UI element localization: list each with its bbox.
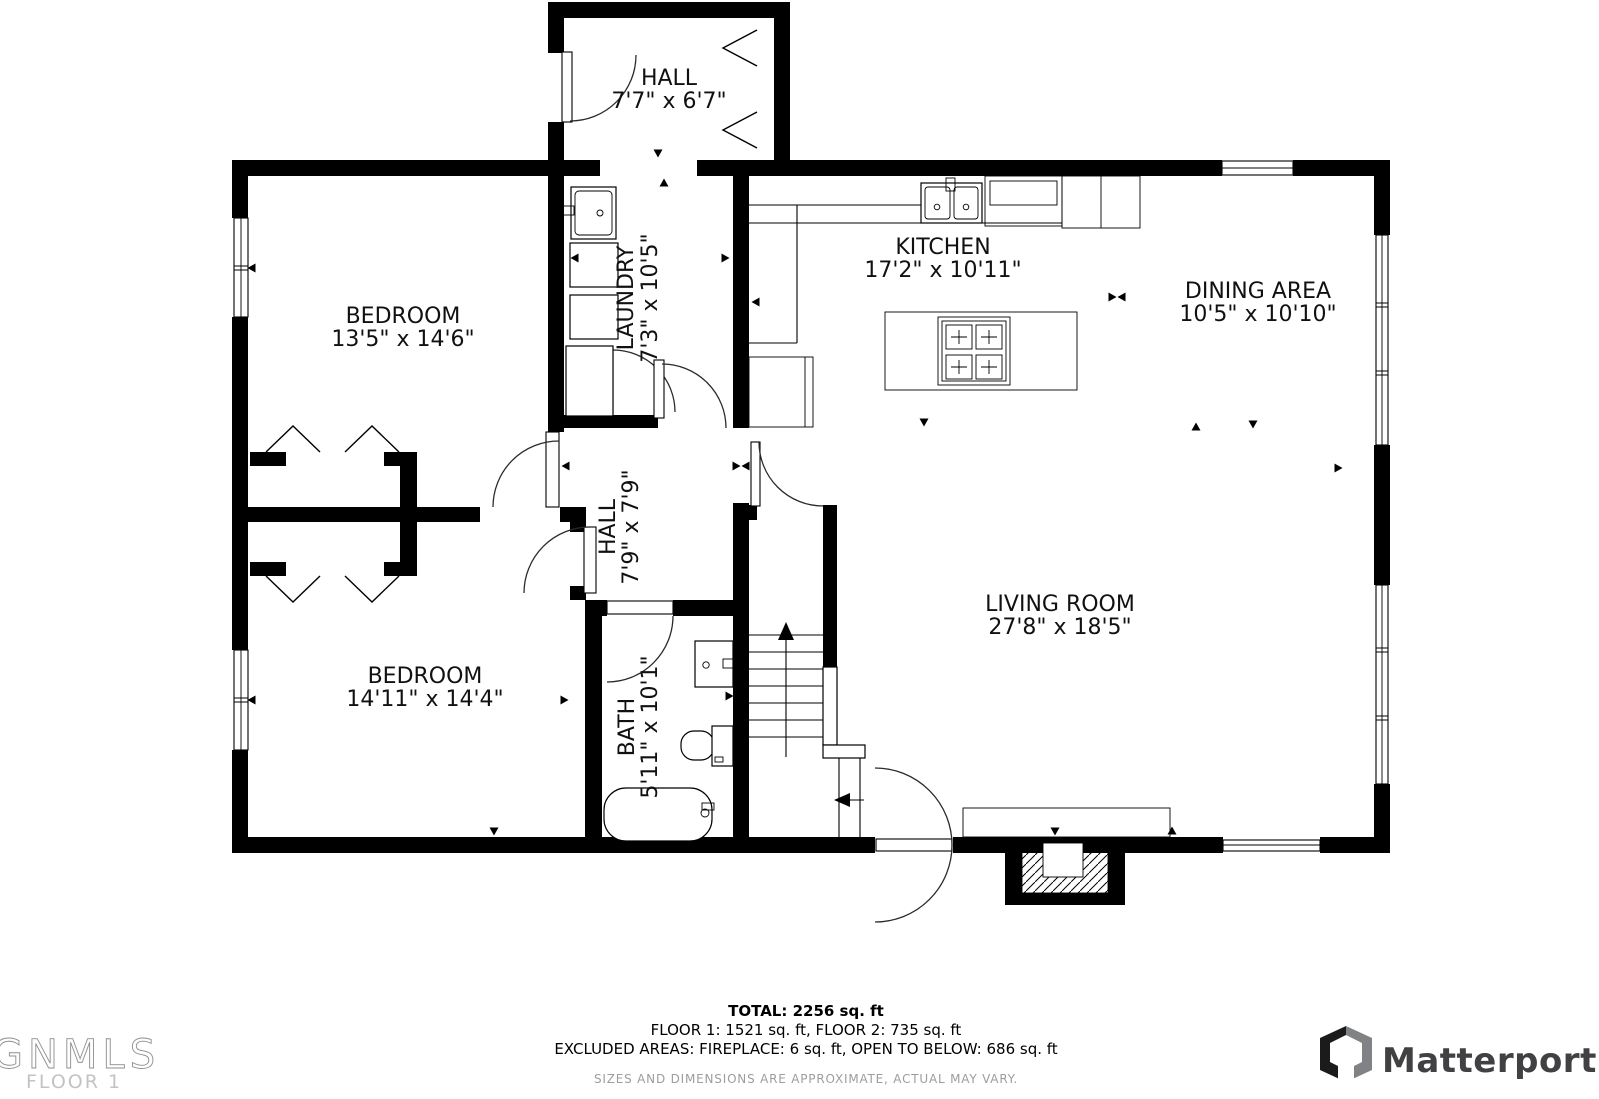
room-label-living: LIVING ROOM (985, 592, 1135, 617)
stairs-up-arrow-icon (778, 622, 794, 640)
floor-watermark: FLOOR 1 (26, 1071, 122, 1093)
stairs (749, 622, 865, 837)
disclaimer-text: SIZES AND DIMENSIONS ARE APPROXIMATE, AC… (594, 1072, 1018, 1086)
oven (749, 357, 813, 427)
dryer (570, 295, 618, 339)
laundry-cabinet (566, 346, 613, 416)
room-dims-hall-upper: 7'7" x 6'7" (611, 89, 726, 114)
room-dims-bedroom-2: 14'11" x 14'4" (346, 687, 503, 712)
kitchen-sink (921, 183, 982, 223)
front-door-leaf (562, 52, 572, 122)
total-area-text: TOTAL: 2256 sq. ft (728, 1002, 884, 1020)
walls (232, 2, 1390, 853)
room-label-dining: DINING AREA (1185, 279, 1331, 304)
bath-vanity (695, 641, 733, 687)
room-dims-bath: 5'11" x 10'1" (638, 655, 663, 798)
room-dims-hall-main: 7'9" x 7'9" (619, 469, 644, 584)
matterport-cube-icon (1320, 1026, 1372, 1086)
room-dims-laundry: 7'3" x 10'5" (638, 233, 663, 362)
floor-areas-text: FLOOR 1: 1521 sq. ft, FLOOR 2: 735 sq. f… (651, 1021, 962, 1039)
room-dims-living: 27'8" x 18'5" (988, 615, 1131, 640)
matterport-logo: Matterport (1320, 1026, 1597, 1086)
watermark: GNMLS FLOOR 1 (0, 1032, 160, 1093)
room-label-bedroom-2: BEDROOM (368, 664, 483, 689)
room-label-bath: BATH (615, 698, 640, 756)
floor-plan-canvas: HALL 7'7" x 6'7" BEDROOM 13'5" x 14'6" L… (0, 0, 1599, 1099)
room-label-laundry: LAUNDRY (614, 245, 639, 350)
entry-direction-arrow-icon (834, 793, 850, 807)
kitchen-fixtures (749, 176, 1140, 427)
firebox (1043, 843, 1083, 877)
cooktop (938, 317, 1010, 385)
laundry-sink (571, 187, 616, 239)
closet-bifold-icon (723, 30, 757, 148)
hearth (963, 808, 1170, 837)
closet-bifold-icon (266, 426, 399, 452)
cooktop-burners-icon (946, 325, 1002, 379)
stair-railing-end (823, 745, 865, 758)
counter-appliance (985, 176, 1062, 226)
room-label-bedroom-1: BEDROOM (346, 304, 461, 329)
toilet-bowl (681, 731, 714, 760)
closet-bifold-icon (266, 576, 399, 602)
room-dims-kitchen: 17'2" x 10'11" (864, 258, 1021, 283)
matterport-wordmark: Matterport (1382, 1041, 1597, 1081)
room-dims-bedroom-1: 13'5" x 14'6" (331, 327, 474, 352)
floor-plan-page: HALL 7'7" x 6'7" BEDROOM 13'5" x 14'6" L… (0, 0, 1599, 1099)
room-label-kitchen: KITCHEN (895, 235, 990, 260)
fireplace (963, 808, 1170, 905)
washer (570, 243, 618, 287)
room-label-hall-main: HALL (596, 498, 621, 555)
laundry-fixtures (562, 187, 618, 416)
area-summary: TOTAL: 2256 sq. ft FLOOR 1: 1521 sq. ft,… (554, 1002, 1057, 1086)
room-dims-dining: 10'5" x 10'10" (1179, 302, 1336, 327)
kitchen-island (885, 312, 1077, 390)
stair-railing (823, 667, 837, 745)
excluded-areas-text: EXCLUDED AREAS: FIREPLACE: 6 sq. ft, OPE… (554, 1040, 1057, 1058)
room-label-hall-upper: HALL (641, 66, 698, 91)
